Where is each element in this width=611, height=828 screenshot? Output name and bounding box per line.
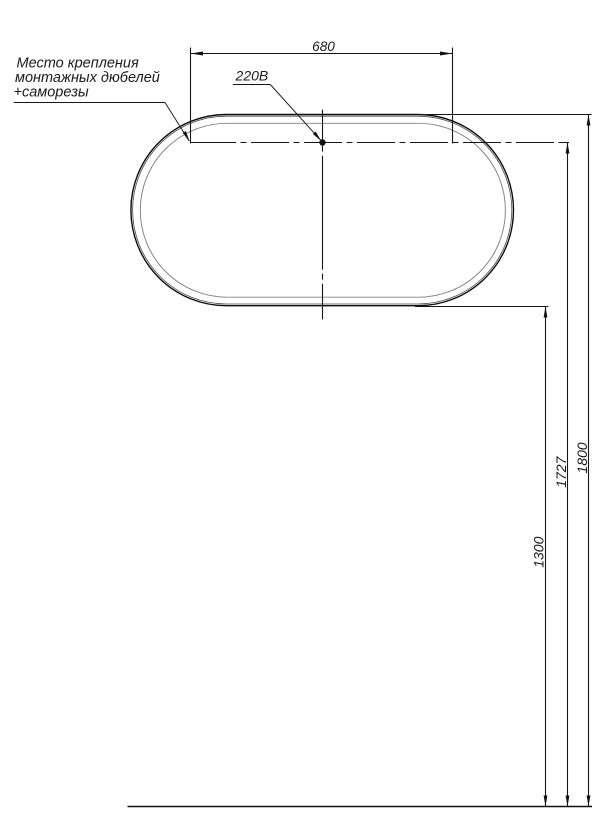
svg-text:680: 680	[312, 39, 335, 54]
svg-text:220В: 220В	[235, 68, 269, 84]
svg-text:монтажных дюбелей: монтажных дюбелей	[15, 70, 160, 86]
svg-text:1727: 1727	[553, 455, 569, 487]
svg-text:1300: 1300	[531, 536, 547, 567]
svg-text:1800: 1800	[574, 442, 590, 473]
svg-text:Место крепления: Место крепления	[17, 55, 139, 71]
svg-text:+саморезы: +саморезы	[14, 85, 89, 101]
